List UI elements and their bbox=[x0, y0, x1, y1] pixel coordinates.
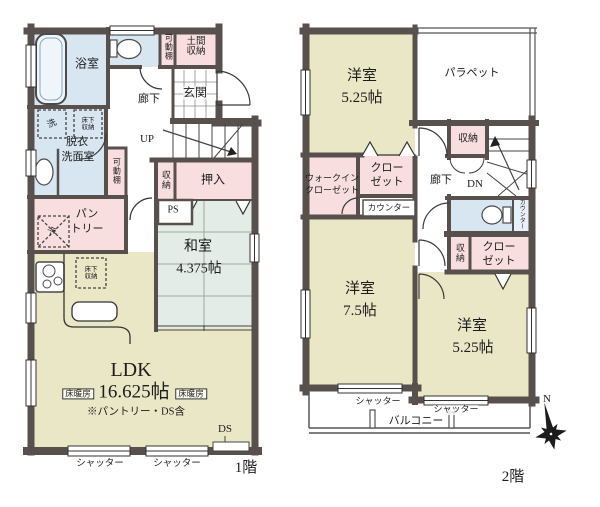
bathtub bbox=[36, 34, 66, 104]
floor2-label: 2階 bbox=[502, 469, 525, 485]
floor-plan-canvas: 浴室 可動棚 土間収納 玄関 廊下 UP 洗 床下収納 脱衣 洗面室 可動棚 収… bbox=[0, 0, 600, 507]
storage-1f-label: 収納 bbox=[160, 170, 170, 190]
shutter-label-3: シャッター bbox=[355, 397, 400, 407]
wic-label-line1: ウォークイン bbox=[305, 174, 359, 184]
storage-bottom-label: 収納 bbox=[454, 243, 464, 263]
floor-heating-badge-right: 床暖房 bbox=[175, 388, 207, 399]
movable-shelf-label: 可動棚 bbox=[164, 34, 173, 61]
shutter-label-1: シャッター bbox=[76, 459, 124, 469]
room1-size-label: 5.25帖 bbox=[341, 90, 382, 106]
pantry-label-line2: トリー bbox=[71, 224, 104, 236]
entrance-label: 玄関 bbox=[183, 87, 207, 100]
pantry-label-line1: パン bbox=[76, 209, 99, 221]
washbasin bbox=[35, 159, 53, 185]
room3-label: 洋室 bbox=[457, 318, 487, 334]
room1-label: 洋室 bbox=[347, 68, 377, 84]
kitchen-stove bbox=[36, 262, 64, 292]
room2-size-label: 7.5帖 bbox=[343, 303, 377, 319]
stairs-down-label: DN bbox=[467, 179, 483, 191]
closet2-label-line2: ゼット bbox=[483, 256, 516, 268]
stairs-up bbox=[163, 124, 243, 158]
doma-storage-label: 土間収納 bbox=[185, 37, 207, 58]
shutter-label-4: シャッター bbox=[433, 405, 478, 415]
storage-top-label: 収納 bbox=[458, 135, 478, 146]
room2-label: 洋室 bbox=[345, 281, 375, 297]
closet2-label-line1: クロー bbox=[483, 242, 516, 254]
bath-label: 浴室 bbox=[75, 58, 99, 71]
shutter-label-2: シャッター bbox=[153, 459, 201, 469]
compass-north-label: N bbox=[543, 394, 551, 406]
closet1-label-line1: クロー bbox=[371, 163, 404, 175]
washitsu-size-label: 4.375帖 bbox=[176, 261, 222, 276]
floor1-label: 1階 bbox=[235, 460, 258, 476]
movable-shelf2-label: 可動棚 bbox=[112, 158, 121, 185]
parapet-label: パラペット bbox=[445, 68, 500, 80]
oshiire-label: 押入 bbox=[201, 174, 225, 187]
ps-label: PS bbox=[167, 206, 178, 217]
ldk-size-label: 16.625帖 bbox=[98, 383, 169, 404]
counter-small-label: カウンター bbox=[518, 199, 524, 229]
ldk-label: LDK bbox=[110, 360, 151, 382]
ds-label: DS bbox=[218, 424, 232, 436]
closet1-label-line2: ゼット bbox=[371, 177, 404, 189]
counter-label: カウンター bbox=[368, 203, 411, 212]
stairs-down bbox=[487, 136, 530, 196]
balcony-label: バルコニー bbox=[389, 416, 444, 428]
ldk-note-label: ※パントリー・DS含 bbox=[87, 406, 185, 417]
washitsu-label: 和室 bbox=[184, 239, 212, 254]
washroom-label-line1: 脱衣 bbox=[66, 137, 88, 149]
toilet-2f bbox=[482, 206, 511, 224]
compass-rose bbox=[528, 399, 571, 454]
floor-heating-badge-left: 床暖房 bbox=[62, 388, 94, 399]
underfloor-storage-label-1: 床下収納 bbox=[81, 117, 96, 131]
stairs-up-label: UP bbox=[140, 134, 154, 146]
washroom-label-line2: 洗面室 bbox=[62, 152, 95, 164]
hallway-1f-label: 廊下 bbox=[138, 94, 160, 106]
underfloor-storage-label-2: 床下収納 bbox=[84, 266, 99, 280]
wic-label-line2: クローゼット bbox=[305, 186, 359, 196]
toilet-1f bbox=[110, 40, 141, 59]
room3-size-label: 5.25帖 bbox=[452, 340, 493, 356]
hallway-2f-label: 廊下 bbox=[430, 175, 452, 187]
